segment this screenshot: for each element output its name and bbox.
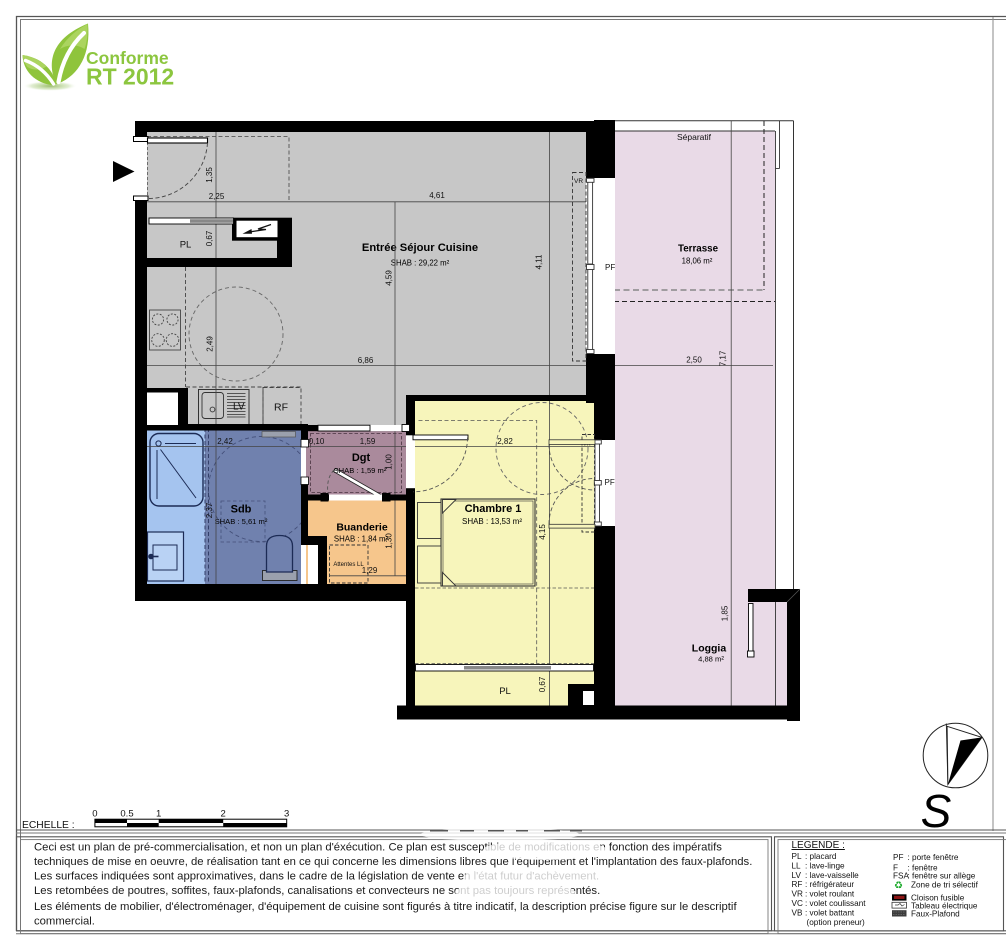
- svg-text:: lave-vaisselle: : lave-vaisselle: [805, 871, 859, 880]
- svg-text:S: S: [921, 785, 952, 837]
- svg-text:4,15: 4,15: [538, 524, 547, 540]
- svg-text:VB: VB: [792, 909, 803, 918]
- svg-text:7,17: 7,17: [719, 350, 728, 366]
- svg-text:RF: RF: [792, 880, 803, 889]
- svg-text:SHAB : 5,61 m²: SHAB : 5,61 m²: [215, 517, 268, 526]
- svg-text:SHAB : 13,53 m²: SHAB : 13,53 m²: [462, 517, 522, 526]
- svg-text:VC: VC: [792, 899, 803, 908]
- svg-text:2,25: 2,25: [209, 192, 225, 201]
- svg-text:1,30: 1,30: [385, 533, 394, 549]
- svg-text:: volet roulant: : volet roulant: [805, 890, 855, 899]
- svg-text:Les éléments de mobilier, d'él: Les éléments de mobilier, d'électroménag…: [34, 901, 737, 913]
- svg-text:: placard: : placard: [805, 852, 837, 861]
- svg-text:RF: RF: [274, 402, 288, 414]
- svg-text:Séparatif: Séparatif: [677, 132, 712, 142]
- svg-text:4,61: 4,61: [429, 191, 445, 200]
- svg-text:0: 0: [92, 809, 97, 820]
- svg-text:3: 3: [284, 809, 289, 820]
- svg-text:Sdb: Sdb: [231, 504, 252, 516]
- svg-text:techniques de mise en oeuvre,: techniques de mise en oeuvre, de réalisa…: [34, 856, 752, 868]
- svg-text:2: 2: [221, 809, 226, 820]
- svg-text:Faux-Plafond: Faux-Plafond: [911, 910, 960, 919]
- svg-text:♻: ♻: [894, 881, 903, 892]
- svg-text:Chambre 1: Chambre 1: [465, 503, 522, 515]
- svg-text:: volet coulissant: : volet coulissant: [805, 899, 866, 908]
- svg-text:: porte fenêtre: : porte fenêtre: [908, 853, 959, 862]
- svg-text:Terrasse: Terrasse: [678, 244, 719, 255]
- svg-text:Entrée Séjour Cuisine: Entrée Séjour Cuisine: [362, 242, 478, 254]
- svg-text:RT 2012: RT 2012: [86, 64, 174, 90]
- svg-text:2,37: 2,37: [205, 502, 214, 518]
- svg-text:: fenêtre sur allège: : fenêtre sur allège: [908, 872, 976, 881]
- svg-text:PF: PF: [893, 853, 903, 862]
- svg-text:LV: LV: [233, 402, 245, 413]
- svg-text:1,00: 1,00: [385, 454, 394, 470]
- svg-text:VR: VR: [574, 178, 583, 185]
- svg-text:VR: VR: [792, 890, 803, 899]
- svg-text:4,88 m²: 4,88 m²: [698, 655, 724, 664]
- svg-text:Ceci est un plan de pré-commer: Ceci est un plan de pré-commercialisatio…: [34, 841, 722, 853]
- svg-text:0,67: 0,67: [205, 230, 214, 246]
- svg-text:0.5: 0.5: [120, 809, 133, 820]
- svg-text:1,35: 1,35: [205, 167, 214, 183]
- svg-text:commercial.: commercial.: [34, 916, 95, 928]
- svg-text:: volet battant: : volet battant: [805, 909, 855, 918]
- svg-text:Zone de tri sélectif: Zone de tri sélectif: [911, 881, 979, 890]
- svg-text:SHAB : 29,22 m²: SHAB : 29,22 m²: [391, 259, 450, 268]
- svg-text:Attentes LL: Attentes LL: [333, 562, 364, 568]
- svg-text:Loggia: Loggia: [692, 643, 727, 655]
- svg-text:1,29: 1,29: [362, 566, 378, 575]
- svg-text:2,42: 2,42: [217, 437, 233, 446]
- svg-text:PL: PL: [499, 686, 511, 697]
- svg-text:2,50: 2,50: [686, 356, 702, 365]
- svg-text:18,06 m²: 18,06 m²: [682, 257, 713, 266]
- svg-text:2,82: 2,82: [497, 437, 513, 446]
- svg-text:1,59: 1,59: [360, 437, 376, 446]
- svg-text:SHAB : 1,59 m²: SHAB : 1,59 m²: [334, 466, 387, 475]
- svg-text:: réfrigérateur: : réfrigérateur: [805, 880, 854, 889]
- svg-text:PF: PF: [605, 478, 615, 487]
- svg-text:6,86: 6,86: [358, 356, 374, 365]
- svg-text:0,67: 0,67: [538, 676, 547, 692]
- svg-text:PL: PL: [792, 852, 802, 861]
- svg-text:SHAB : 1,84 m²: SHAB : 1,84 m²: [334, 535, 389, 544]
- svg-text:1: 1: [156, 809, 161, 820]
- svg-text:LEGENDE :: LEGENDE :: [792, 840, 845, 851]
- svg-text:(option preneur): (option preneur): [807, 918, 866, 927]
- svg-text:PL: PL: [180, 240, 192, 251]
- svg-text:LL: LL: [792, 861, 802, 870]
- svg-text:PF: PF: [605, 263, 615, 272]
- svg-text:2,49: 2,49: [206, 336, 215, 352]
- svg-text:4,59: 4,59: [385, 270, 394, 286]
- svg-text:LV: LV: [792, 871, 802, 880]
- svg-text:: lave-linge: : lave-linge: [805, 861, 845, 870]
- svg-text:Dgt: Dgt: [352, 452, 371, 464]
- svg-text:ECHELLE :: ECHELLE :: [22, 820, 75, 831]
- svg-text:0,10: 0,10: [309, 437, 325, 446]
- svg-text:4,11: 4,11: [535, 254, 544, 270]
- svg-text:1,85: 1,85: [721, 605, 730, 621]
- svg-text:Buanderie: Buanderie: [336, 522, 388, 534]
